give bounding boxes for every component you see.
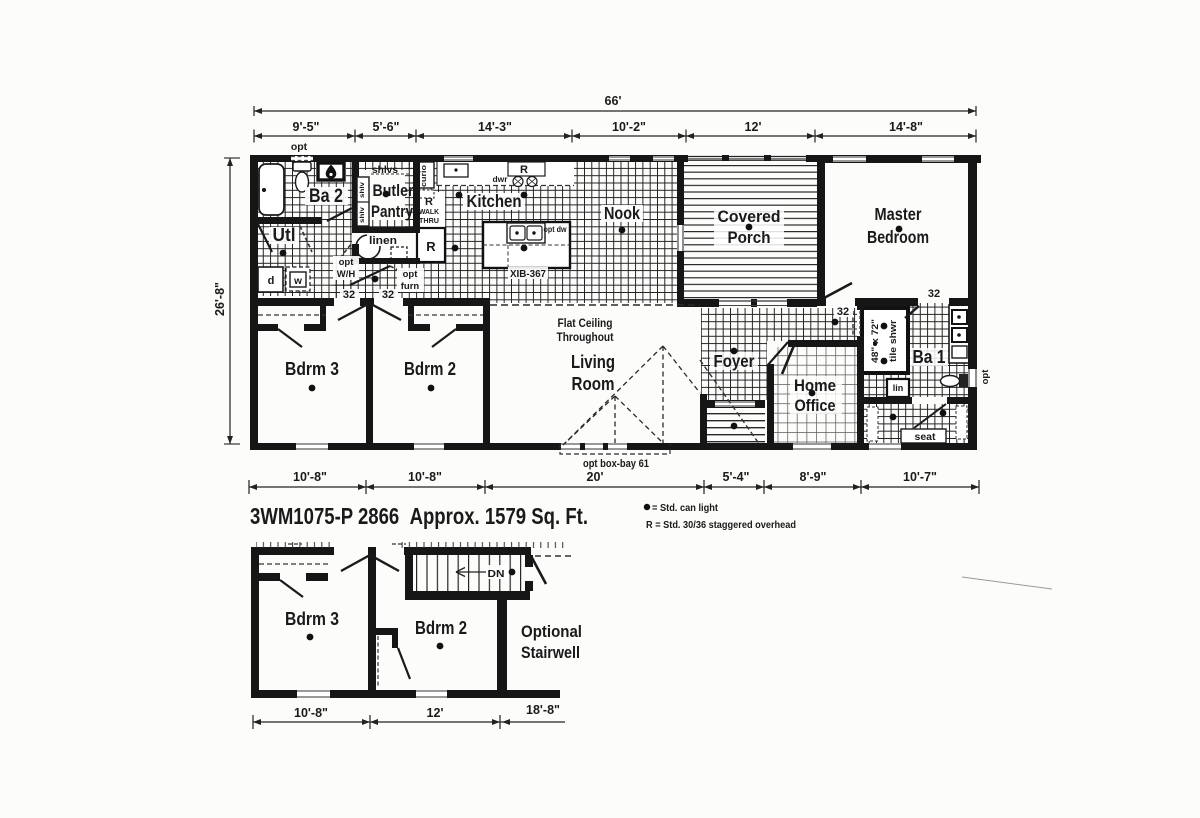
svg-text:opt dw: opt dw (544, 224, 567, 234)
svg-text:20': 20' (587, 470, 604, 484)
svg-text:opt: opt (403, 269, 419, 280)
svg-text:seat: seat (915, 432, 937, 443)
svg-text:R: R (426, 239, 436, 254)
svg-text:opt: opt (980, 369, 991, 385)
svg-text:32: 32 (928, 288, 940, 300)
svg-text:Utl: Utl (273, 225, 296, 245)
svg-text:Butler: Butler (373, 181, 414, 200)
svg-text:opt: opt (291, 141, 308, 153)
svg-text:= Std. can light: = Std. can light (652, 503, 719, 514)
svg-text:12': 12' (427, 706, 444, 720)
svg-text:14'-8": 14'-8" (889, 120, 923, 134)
svg-text:shlv: shlv (359, 182, 366, 198)
svg-text:26'-8": 26'-8" (213, 282, 227, 316)
svg-text:10'-8": 10'-8" (294, 706, 328, 720)
svg-text:Stairwell: Stairwell (521, 643, 580, 662)
svg-text:Room: Room (572, 374, 615, 394)
svg-text:W/H: W/H (337, 269, 356, 280)
svg-text:Optional: Optional (521, 622, 582, 641)
svg-text:opt box-bay 61: opt box-bay 61 (583, 458, 649, 470)
svg-text:Ba 1: Ba 1 (913, 347, 946, 367)
svg-text:3WM1075-P 2866 Approx. 1579 S: 3WM1075-P 2866 Approx. 1579 Sq. Ft. (250, 503, 588, 529)
svg-text:Kitchen: Kitchen (467, 191, 522, 211)
svg-text:66': 66' (605, 94, 622, 108)
svg-text:12': 12' (745, 120, 762, 134)
svg-text:10'-8": 10'-8" (408, 470, 442, 484)
svg-text:linen: linen (369, 235, 397, 247)
svg-text:32: 32 (382, 289, 394, 301)
svg-text:Ba 2: Ba 2 (309, 186, 343, 207)
svg-text:32: 32 (343, 289, 355, 301)
svg-text:DN: DN (488, 568, 505, 580)
svg-text:9'-5": 9'-5" (293, 120, 320, 134)
svg-text:Bdrm 2: Bdrm 2 (404, 359, 456, 379)
svg-text:w: w (293, 276, 302, 287)
svg-text:Bdrm 2: Bdrm 2 (415, 618, 467, 638)
svg-text:curio: curio (419, 165, 428, 187)
svg-text:Master: Master (875, 204, 922, 224)
svg-text:furn: furn (401, 281, 420, 292)
svg-text:XIB-367: XIB-367 (510, 268, 546, 280)
svg-text:Living: Living (571, 352, 615, 372)
svg-text:5'-4": 5'-4" (723, 470, 750, 484)
svg-text:Pantry: Pantry (371, 202, 413, 221)
svg-text:R = Std. 30/36 staggered overh: R = Std. 30/36 staggered overhead (646, 520, 796, 531)
svg-text:shlvs: shlvs (372, 164, 398, 176)
svg-text:10'-8": 10'-8" (293, 470, 327, 484)
svg-text:lin: lin (893, 383, 904, 393)
svg-text:Bdrm 3: Bdrm 3 (285, 609, 339, 629)
svg-text:5'-6": 5'-6" (373, 120, 400, 134)
svg-text:Flat Ceiling: Flat Ceiling (558, 318, 613, 330)
svg-text:Bdrm 3: Bdrm 3 (285, 359, 339, 379)
svg-text:14'-3": 14'-3" (478, 120, 512, 134)
svg-text:10'-7": 10'-7" (903, 470, 937, 484)
svg-text:THRU: THRU (419, 216, 439, 225)
svg-text:WALK: WALK (419, 207, 440, 216)
svg-text:Nook: Nook (604, 203, 640, 223)
svg-text:opt: opt (339, 257, 355, 268)
svg-text:32: 32 (837, 306, 849, 318)
svg-text:tile shwr: tile shwr (888, 320, 899, 362)
svg-text:dwr: dwr (493, 174, 509, 184)
svg-text:R: R (520, 164, 528, 176)
svg-text:48" x 72": 48" x 72" (870, 319, 881, 363)
svg-text:Covered: Covered (718, 207, 781, 226)
svg-text:Porch: Porch (728, 228, 771, 247)
svg-text:10'-2": 10'-2" (612, 120, 646, 134)
svg-text:18'-8": 18'-8" (526, 703, 560, 717)
svg-text:Office: Office (795, 397, 836, 415)
svg-text:8'-9": 8'-9" (800, 470, 827, 484)
svg-text:d: d (268, 275, 275, 287)
svg-text:shlv: shlv (359, 207, 366, 223)
svg-text:Throughout: Throughout (557, 332, 614, 344)
